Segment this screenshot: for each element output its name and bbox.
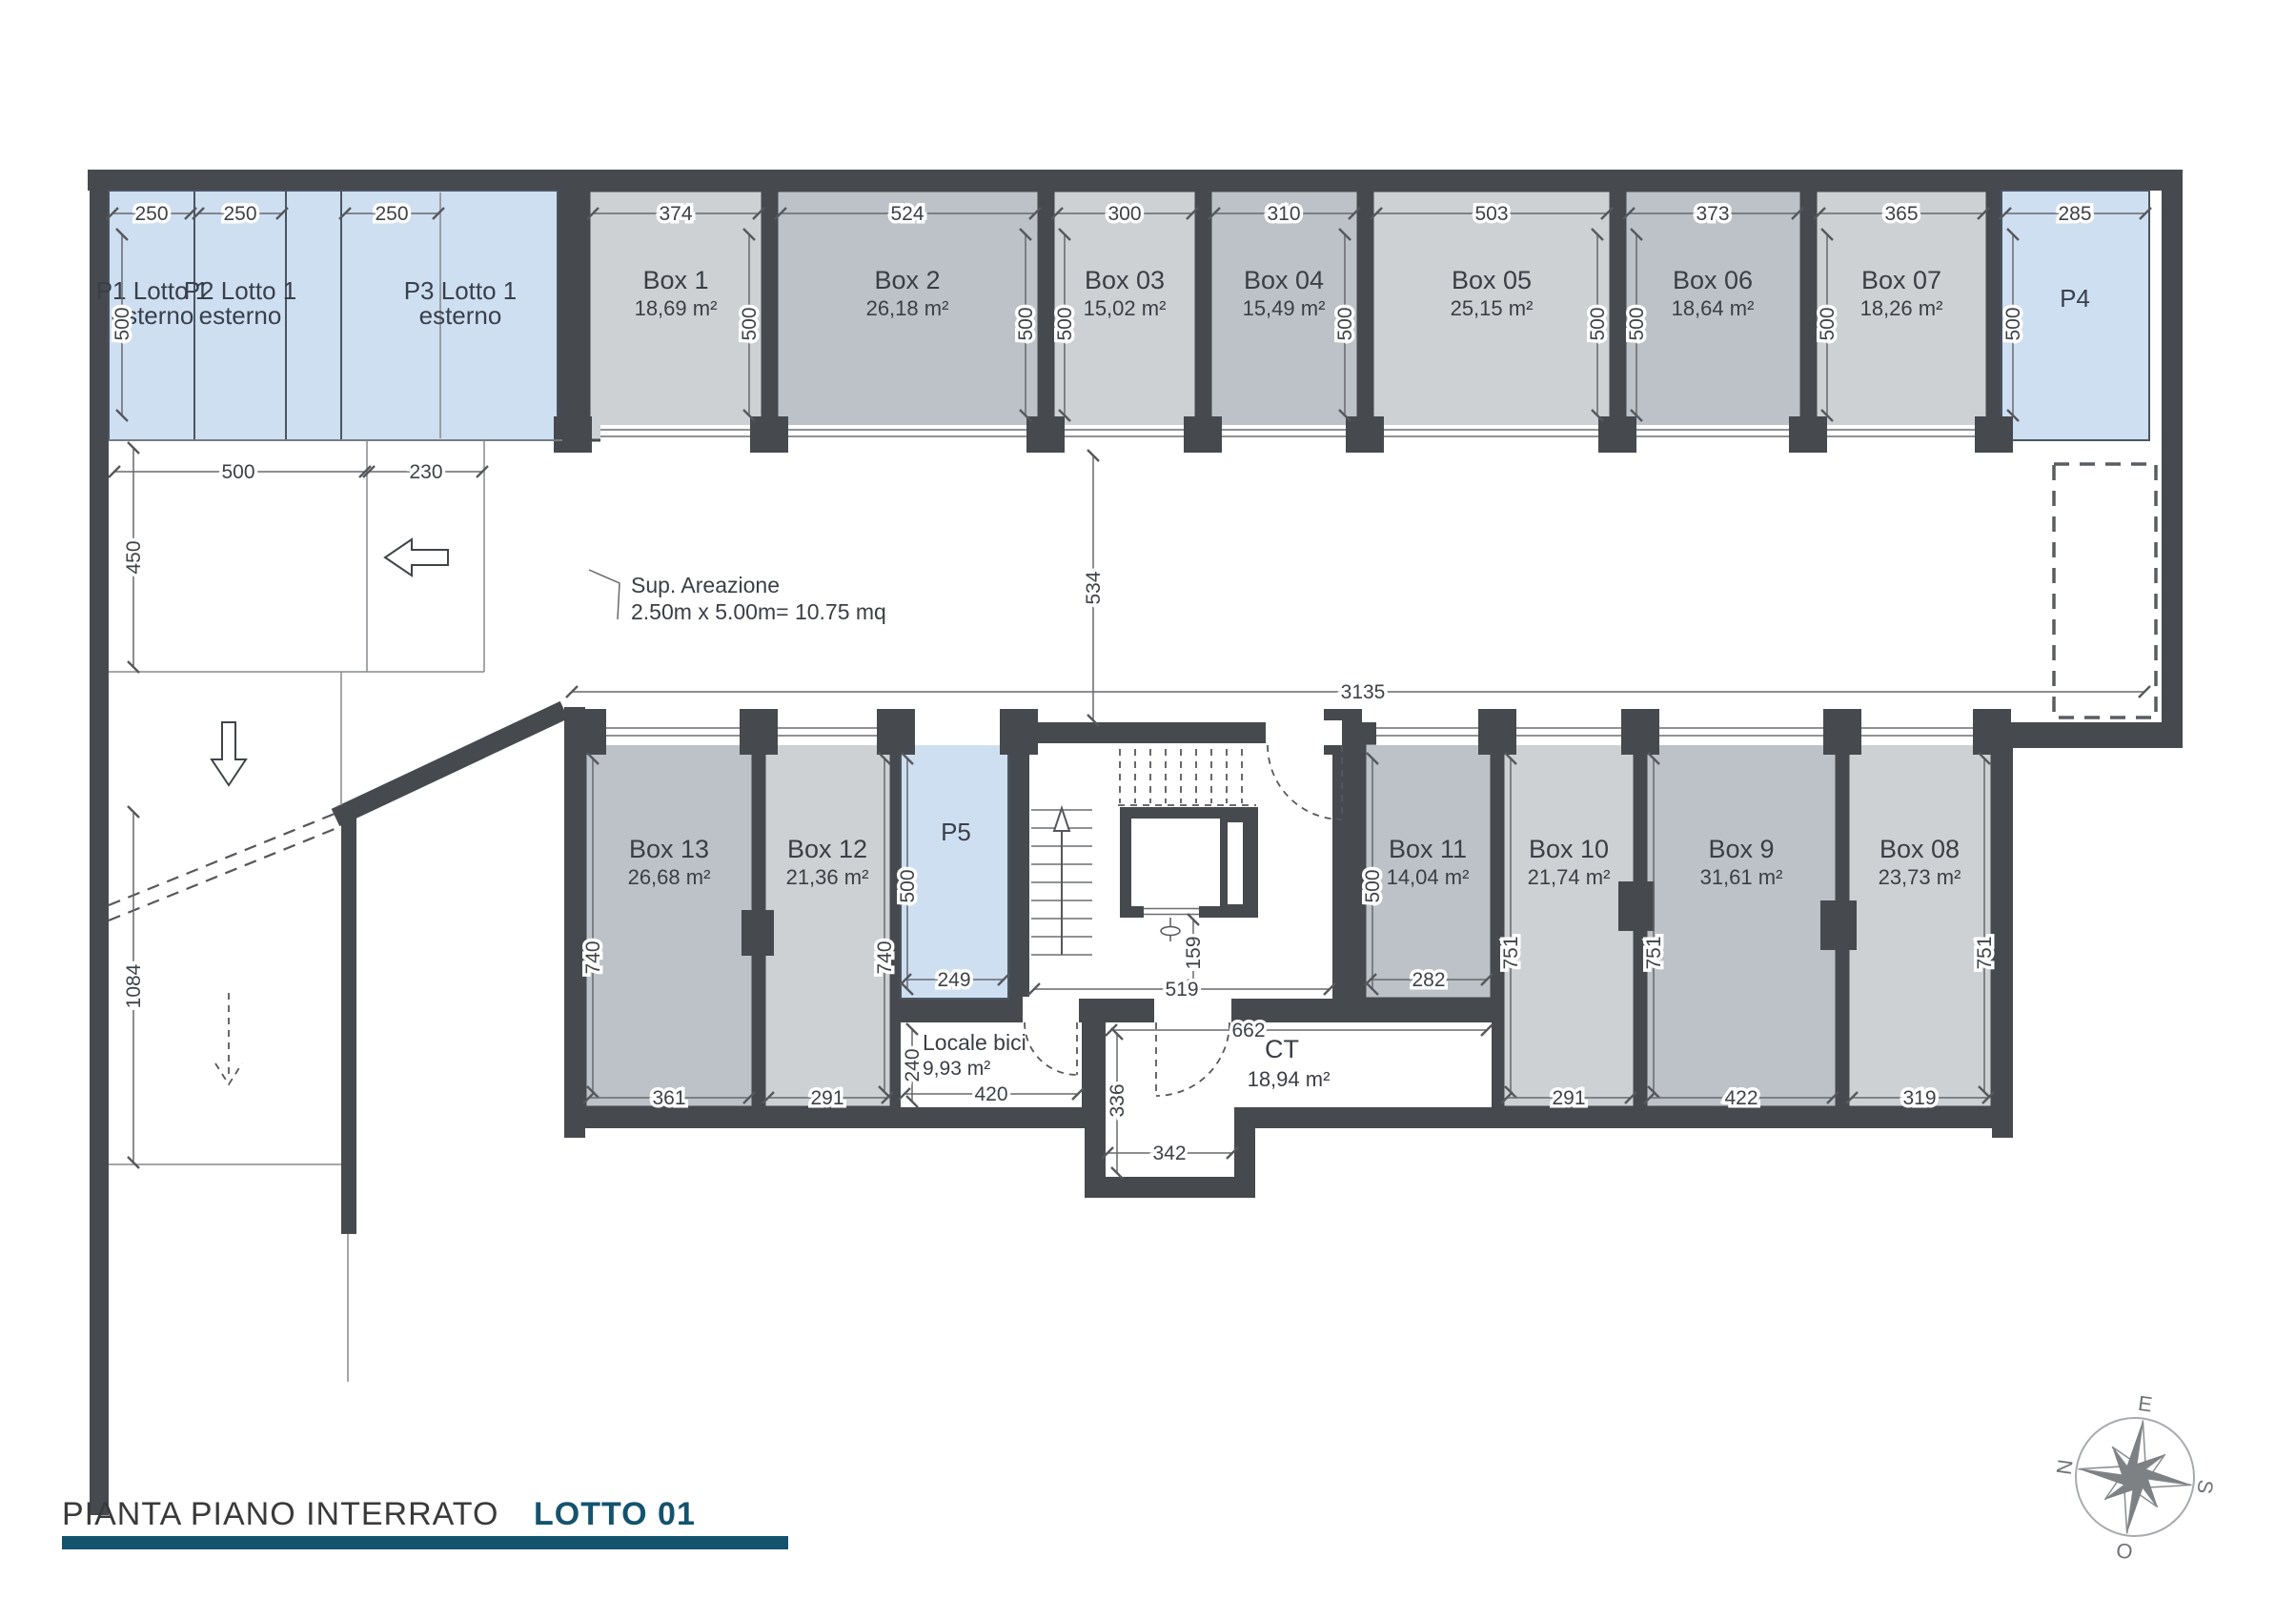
area-box08: 23,73 m² xyxy=(1879,865,1961,889)
arrow-down-icon xyxy=(212,722,246,785)
dim-box10-width: 291 xyxy=(1552,1087,1585,1109)
label-box07: Box 07 xyxy=(1861,266,1941,294)
svg-text:500: 500 xyxy=(112,307,133,340)
label-box9: Box 9 xyxy=(1708,835,1774,863)
label-box08: Box 08 xyxy=(1879,835,1960,863)
corridor: Sup. Areazione 2.50m x 5.00m= 10.75 mq xyxy=(589,464,2156,718)
dim-ct-niche: 342 xyxy=(1152,1143,1186,1164)
dim-p2-width: 250 xyxy=(223,203,256,225)
floor-plan-page: Sup. Areazione 2.50m x 5.00m= 10.75 mq P… xyxy=(0,0,2296,1618)
dim-box07-width: 365 xyxy=(1884,203,1918,225)
title-block: PIANTA PIANO INTERRATO LOTTO 01 xyxy=(62,1496,788,1549)
svg-text:500: 500 xyxy=(1587,307,1609,340)
floor-plan-drawing: Sup. Areazione 2.50m x 5.00m= 10.75 mq P… xyxy=(0,0,2296,1618)
svg-text:500: 500 xyxy=(1817,307,1839,340)
area-box11: 14,04 m² xyxy=(1387,865,1470,889)
elevator-symbol xyxy=(1161,918,1180,941)
area-ct: 18,94 m² xyxy=(1248,1067,1331,1091)
dim-p1-width: 250 xyxy=(134,203,168,225)
garage-door xyxy=(1657,720,1825,745)
svg-text:500: 500 xyxy=(2002,307,2024,340)
garage-door xyxy=(600,425,751,442)
garage-door xyxy=(597,720,742,745)
areazione-annotation: Sup. Areazione 2.50m x 5.00m= 10.75 mq xyxy=(589,570,886,624)
area-locale-bici: 9,93 m² xyxy=(923,1058,990,1080)
garage-door xyxy=(1376,720,1480,745)
stair-direction-arrow xyxy=(1054,808,1069,955)
page-title: PIANTA PIANO INTERRATO xyxy=(62,1496,498,1532)
areazione-line2: 2.50m x 5.00m= 10.75 mq xyxy=(631,599,886,624)
label-box10: Box 10 xyxy=(1529,835,1609,863)
area-box05: 25,15 m² xyxy=(1451,296,1534,320)
stair-door xyxy=(1266,720,1342,819)
svg-text:500: 500 xyxy=(1626,307,1648,340)
compass-e: E xyxy=(2137,1391,2154,1417)
garage-door xyxy=(1384,425,1599,442)
dim-box04-width: 310 xyxy=(1267,203,1300,225)
dim-left-width: 500 xyxy=(221,461,254,483)
garage-door xyxy=(1222,425,1347,442)
garage-door xyxy=(1859,720,1981,745)
compass-n: N xyxy=(2052,1458,2078,1476)
area-box12: 21,36 m² xyxy=(786,865,869,889)
label-p5: P5 xyxy=(941,818,971,846)
room-box-12 xyxy=(764,743,891,1107)
dim-box10-height: 751 xyxy=(1500,936,1522,969)
svg-text:500: 500 xyxy=(739,307,761,340)
dim-p5-width: 249 xyxy=(937,969,970,991)
area-box06: 18,64 m² xyxy=(1672,296,1755,320)
label-box13: Box 13 xyxy=(629,835,709,863)
ramp-dashed-edges xyxy=(109,812,339,920)
area-box10: 21,74 m² xyxy=(1528,865,1611,889)
area-box2: 26,18 m² xyxy=(866,296,949,320)
dim-p3-width: 250 xyxy=(375,203,408,225)
room-box-9 xyxy=(1646,743,1837,1107)
dim-p4-width: 285 xyxy=(2058,203,2091,225)
label-box2: Box 2 xyxy=(874,266,940,294)
dim-corridor-length: 3135 xyxy=(1341,681,1386,703)
lot-title: LOTTO 01 xyxy=(534,1496,696,1532)
room-box-10 xyxy=(1503,743,1635,1107)
reserved-spot-dashed xyxy=(2054,464,2156,718)
label-box12: Box 12 xyxy=(787,835,867,863)
garage-door xyxy=(1636,425,1790,442)
dim-bici-height: 240 xyxy=(902,1048,924,1082)
dim-corridor-height: 534 xyxy=(1083,571,1105,604)
dim-box11-height: 500 xyxy=(1362,869,1384,902)
label-box11: Box 11 xyxy=(1389,835,1467,863)
dim-ct-width: 662 xyxy=(1231,1020,1265,1042)
stair-treads-lower xyxy=(1031,808,1092,955)
dim-box12-height: 740 xyxy=(874,940,896,974)
area-box1: 18,69 m² xyxy=(635,296,718,320)
elevator xyxy=(1120,807,1258,941)
room-box-08 xyxy=(1848,743,1992,1107)
label-box03: Box 03 xyxy=(1085,266,1165,294)
stairwell xyxy=(1031,720,1342,955)
svg-text:500: 500 xyxy=(1015,307,1037,340)
garage-door xyxy=(1514,720,1623,745)
room-box-13 xyxy=(585,743,753,1107)
dim-ct-height: 336 xyxy=(1107,1083,1128,1117)
title-underline xyxy=(62,1536,788,1549)
dim-box9-height: 751 xyxy=(1643,936,1665,969)
dim-box1-width: 374 xyxy=(659,203,692,225)
arrow-left-icon xyxy=(385,539,448,576)
label-box06: Box 06 xyxy=(1673,266,1753,294)
garage-door xyxy=(1827,425,1976,442)
dim-bici-width: 420 xyxy=(974,1083,1007,1105)
label-box05: Box 05 xyxy=(1452,266,1532,294)
locale-bici-door xyxy=(1023,997,1079,1075)
label-p2-2: esterno xyxy=(199,301,282,330)
dim-p5-height: 500 xyxy=(897,869,919,902)
dim-left-inner: 230 xyxy=(409,461,442,483)
dim-box08-height: 751 xyxy=(1974,936,1996,969)
area-box04: 15,49 m² xyxy=(1243,296,1326,320)
compass-o: O xyxy=(2115,1538,2134,1564)
dim-box11-width: 282 xyxy=(1412,969,1445,991)
dim-left-height: 450 xyxy=(123,540,145,574)
label-box04: Box 04 xyxy=(1244,266,1324,294)
dim-stair-width: 519 xyxy=(1165,979,1198,1001)
dim-stair-elev: 159 xyxy=(1183,936,1205,969)
compass-s: S xyxy=(2192,1478,2218,1495)
areazione-line1: Sup. Areazione xyxy=(631,573,780,597)
label-p4: P4 xyxy=(2060,284,2090,313)
compass-rose-icon: E S O N xyxy=(2041,1381,2228,1574)
dim-box05-width: 503 xyxy=(1474,203,1508,225)
ramp-arrow-down-dashed-icon xyxy=(215,993,242,1084)
dim-box12-width: 291 xyxy=(810,1087,843,1109)
dim-box13-height: 740 xyxy=(582,940,604,974)
ramp-area xyxy=(109,440,562,1382)
area-box07: 18,26 m² xyxy=(1860,296,1943,320)
area-box03: 15,02 m² xyxy=(1084,296,1167,320)
dim-box2-width: 524 xyxy=(890,203,924,225)
ct-door xyxy=(1154,997,1231,1096)
garage-door xyxy=(776,720,880,745)
dim-ramp-length: 1084 xyxy=(123,963,145,1008)
dim-box9-width: 422 xyxy=(1724,1087,1758,1109)
label-box1: Box 1 xyxy=(642,266,708,294)
label-p3-2: esterno xyxy=(419,301,502,330)
dim-box03-width: 300 xyxy=(1107,203,1141,225)
garage-door xyxy=(1065,425,1185,442)
area-box9: 31,61 m² xyxy=(1700,865,1783,889)
dim-box13-width: 361 xyxy=(652,1087,685,1109)
parking-gap-cell xyxy=(286,191,341,440)
label-locale-bici: Locale bici xyxy=(923,1030,1026,1055)
stair-treads-upper xyxy=(1118,749,1256,805)
garage-door xyxy=(788,425,1027,442)
dim-box08-width: 319 xyxy=(1902,1087,1936,1109)
svg-text:500: 500 xyxy=(1054,307,1076,340)
area-box13: 26,68 m² xyxy=(628,865,711,889)
label-ct: CT xyxy=(1265,1035,1299,1063)
dim-box06-width: 373 xyxy=(1696,203,1729,225)
svg-text:500: 500 xyxy=(1334,307,1356,340)
